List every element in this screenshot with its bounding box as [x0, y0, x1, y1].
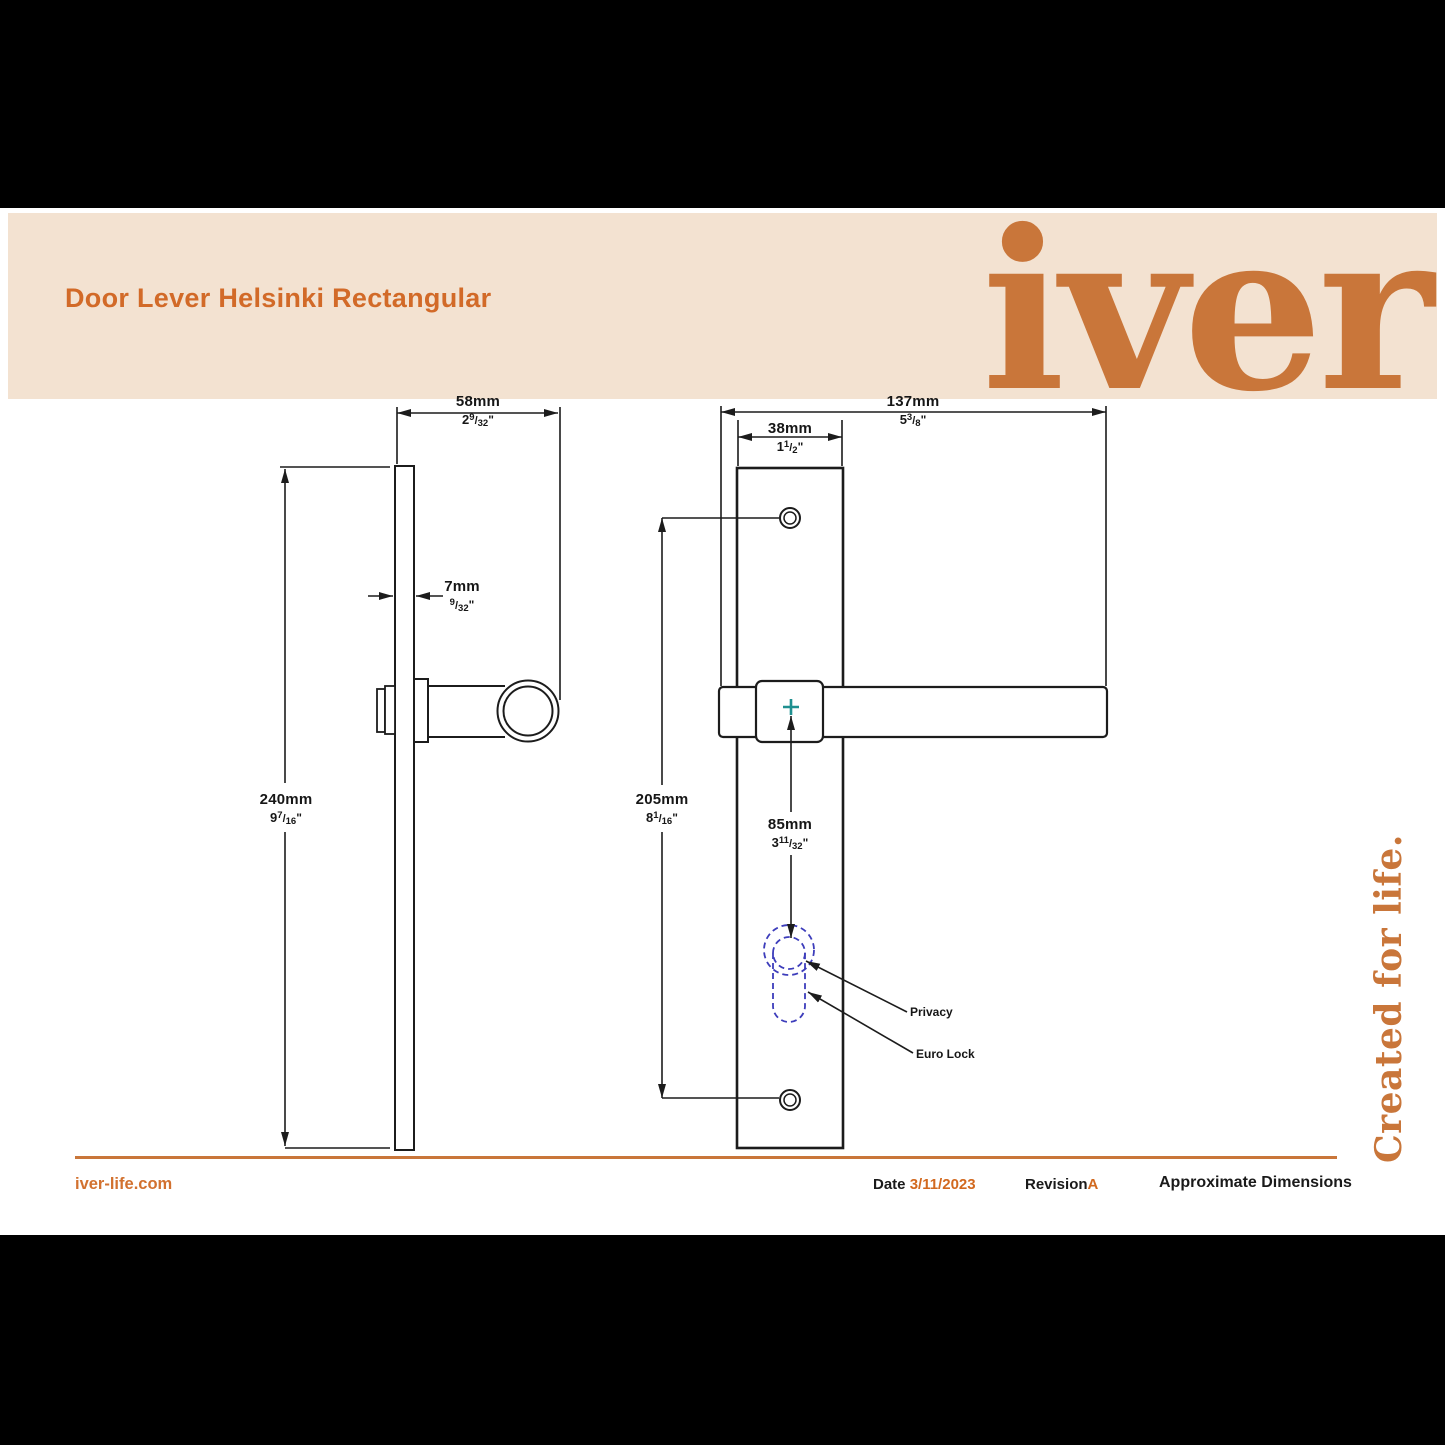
- dim-plate-width-label: 38mm 11/2": [768, 422, 812, 459]
- dim-side-height-label: 240mm 97/16": [260, 793, 313, 830]
- dim-lever-to-lock-label: 85mm 311/32": [768, 818, 812, 855]
- dim-hole-span-label: 205mm 81/16": [636, 793, 689, 830]
- website-text: iver-life.com: [75, 1175, 172, 1194]
- euro-lock-label: Euro Lock: [916, 1047, 975, 1061]
- header-band: Door Lever Helsinki Rectangular iver: [8, 213, 1437, 399]
- dim-side-width-label: 58mm 29/32": [456, 395, 500, 432]
- tagline-vertical: Created for life.: [1368, 834, 1410, 1163]
- privacy-label: Privacy: [910, 1005, 953, 1019]
- date-label: Date: [873, 1176, 906, 1193]
- revision-label: Revision: [1025, 1176, 1088, 1193]
- revision-value: A: [1088, 1176, 1099, 1193]
- page-title: Door Lever Helsinki Rectangular: [65, 283, 491, 314]
- dim-plate-thickness-label: 7mm 9/32": [444, 580, 480, 617]
- footer-rule: [75, 1156, 1337, 1159]
- approximate-dimensions-note: Approximate Dimensions: [1159, 1174, 1352, 1192]
- date-value: 3/11/2023: [910, 1176, 976, 1193]
- spec-sheet-page: Door Lever Helsinki Rectangular iver: [0, 0, 1445, 1445]
- revision-field: RevisionA: [1025, 1176, 1098, 1193]
- sheet-content-area: Door Lever Helsinki Rectangular iver: [0, 208, 1445, 1235]
- date-field: Date 3/11/2023: [873, 1176, 976, 1193]
- dim-front-width-label: 137mm 53/8": [887, 395, 940, 432]
- iver-logo: iver: [982, 201, 1429, 421]
